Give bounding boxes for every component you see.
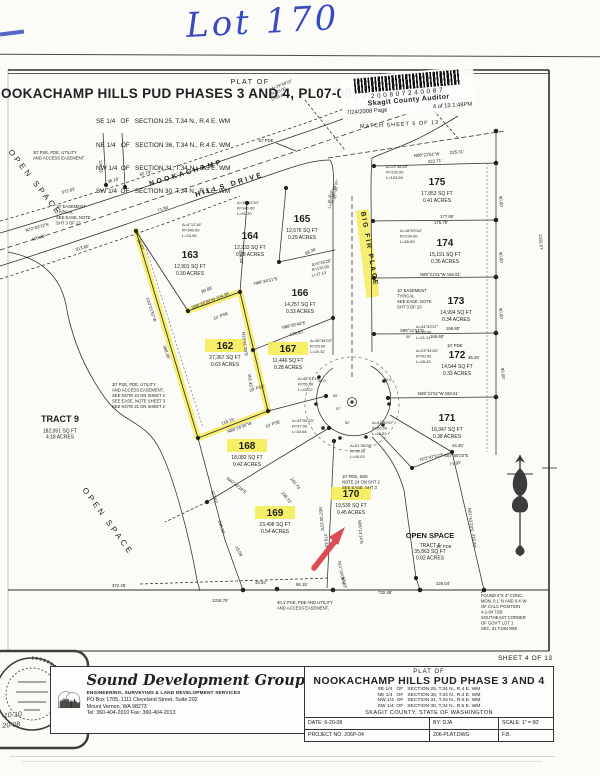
note-label: OF CALC POSITION [481, 604, 520, 609]
note-label: 30' PSE, PDE, UTILITY [33, 150, 77, 155]
note-label: SEE EASE. SHT 3 [342, 485, 378, 490]
dimension-label: 226.04' [436, 581, 450, 586]
sheet-title: NOOKACHAMP HILLS PUD PHASES 3 AND 4, PL0… [0, 86, 368, 101]
dimension-label: 44.45' [452, 443, 464, 448]
dimension-label: 90.00' [498, 252, 504, 264]
lot-number: 162 [217, 341, 234, 352]
curve-data-label: Δ=43°54'33" [292, 418, 315, 423]
scan-artifact-line [10, 756, 555, 757]
scan-artifact-line [22, 761, 542, 762]
note-label: AND ACCESS EASEMENT, [112, 388, 164, 393]
dimension-label: N40°40'26"E [225, 476, 247, 495]
dimension-label: 57' [336, 407, 341, 411]
curve-data-label: R=50.00 [416, 353, 432, 358]
note-label: AND ACCESS EASEMENT, [277, 606, 329, 611]
note-label: 40.1' PSE, PDE AND UTILITY [277, 600, 333, 605]
dimension-label: 10' PSE [265, 419, 281, 429]
note-label: SEE NOTE 21 ON SHEET 2 [112, 404, 166, 409]
lot-area-acres: 0.29 ACRES [288, 235, 317, 241]
dimension-label: 313.80' [75, 243, 90, 252]
lot-number: 164 [242, 231, 259, 242]
note-label: 30' PSE, PDE, UTILITY [112, 382, 156, 387]
curve-data-label: Δ=41°50'57" [372, 420, 395, 425]
dimension-label: 243.73' [289, 477, 302, 491]
dimension-label: 165.60' [430, 334, 444, 339]
lot-number: 175 [429, 177, 446, 188]
section-line: SW 1/4 OF SECTION 30, T.34 N., R.5 E. WM [96, 188, 230, 196]
lot-number: 171 [439, 413, 456, 424]
lot-area-sqft: 27,367 SQ FT [209, 355, 240, 361]
dimension-label: 278.43' [323, 534, 329, 549]
lot-number: 172 [449, 350, 466, 361]
dimension-label: N88°34'51"E [253, 276, 278, 286]
note-label: 10' EASEMENT [397, 288, 427, 293]
plat-title-block: PLAT OF NOOKACHAMP HILLS PUD PHASE 3 AND… [304, 666, 554, 742]
tb-project: PROJECT NO. 206P-04 [305, 729, 430, 742]
note-label: MON. 0.1' N AND 0.4' W [481, 599, 527, 604]
curve-data-label: Δ=15°22'20" [237, 200, 260, 205]
dimension-label: 236.72' [280, 491, 293, 505]
note-label: OF GOV'T LOT 1 [481, 621, 514, 626]
north-arrow-icon [507, 455, 533, 556]
dimension-label: OPEN SPACE [80, 486, 135, 557]
curve-data-label: R=57.00 [292, 423, 308, 428]
curve-data-label: L=21.11 [416, 335, 431, 340]
lot-area-sqft: 16,347 SQ FT [431, 427, 462, 433]
dimension-label: N88°21'51"W [414, 151, 441, 158]
firm-tagline: ENGINEERING, SURVEYING & LAND DEVELOPMEN… [87, 690, 305, 695]
note-label: TRACT 6 [420, 543, 441, 549]
note-label: TYPICAL [397, 294, 415, 299]
seal-handwritten-dates: -10-10 20-08 [1, 710, 23, 732]
lot-area-sqft: 23,498 SQ FT [259, 522, 290, 528]
lot-area-sqft: 12,901 SQ FT [174, 264, 205, 270]
note-label: TYPICAL [56, 210, 74, 215]
dimension-label: N88°21'51"W 166.61' [420, 272, 461, 277]
note-label: SEE NOTE 24 ON SHEET 2 [112, 393, 166, 398]
tb-dwg: 206-PLAT.DWG [430, 729, 499, 742]
dimension-label: 732.48' [378, 590, 392, 595]
lot-number: 174 [437, 238, 454, 249]
note-label: 35,863 SQ FT [414, 549, 445, 555]
dimension-label: 10' PSE [213, 311, 229, 321]
dimension-label: 372.83' [61, 186, 76, 195]
dimension-label: 30' [406, 335, 411, 339]
firm-title-block: Sound Development Group ENGINEERING, SUR… [50, 666, 306, 734]
dimension-label: 222.71' [428, 158, 442, 164]
lot-number: 167 [280, 344, 297, 355]
dimension-label: 90.00' [498, 308, 504, 320]
sheet-plat-of: PLAT OF [150, 79, 350, 86]
curve-data-label: L=20.32 [310, 349, 325, 354]
curve-data-label: L=103.69 [386, 175, 404, 180]
lot-area-sqft: 14,544 SQ FT [441, 364, 472, 370]
note-label: AND ACCESS EASEMENT [33, 156, 85, 161]
firm-address: PO Box 1705, 1111 Cleveland Street, Suit… [87, 697, 305, 717]
lot-area-sqft: 19,539 SQ FT [335, 503, 366, 509]
dimension-label: 372.45' [112, 583, 126, 588]
lot-area-acres: 0.33 ACRES [286, 309, 315, 315]
lot-area-sqft: 15,191 SQ FT [429, 252, 460, 258]
dimension-label: 210.84' [471, 534, 477, 549]
curve-data-label: R=50.00 [350, 448, 366, 453]
note-label: SHT 3 OF 13 [56, 221, 81, 226]
note-label: OPEN SPACE [406, 531, 455, 540]
curve-data-label: R=340.00 [182, 227, 200, 232]
lot-area-sqft: 12,676 SQ FT [286, 228, 317, 234]
note-label: 182,051 SQ FT [43, 428, 77, 434]
curve-data-label: R=35.00 [416, 329, 432, 334]
dimension-label: 175.78' [434, 220, 448, 225]
lot-area-acres: 0.38 ACRES [433, 434, 462, 440]
lot-number: 166 [292, 288, 309, 299]
curve-data-label: R=50.00 [372, 425, 388, 430]
lot-number: 173 [448, 296, 465, 307]
tb-title: NOOKACHAMP HILLS PUD PHASE 3 AND 4 [305, 675, 553, 687]
dimension-label: 177.85' [440, 214, 454, 219]
sheet-section-list: SE 1/4 OF SECTION 25, T.34 N., R.4 E. WM… [96, 103, 230, 203]
lot-area-acres: 0.33 ACRES [443, 371, 472, 377]
note-label: 4-1-04 72/9 [481, 610, 503, 615]
sheet-number: SHEET 4 OF 13 [498, 655, 553, 662]
note-label: 4.18 ACRES [46, 435, 75, 441]
curve-data-label: R=340.00 [237, 205, 255, 210]
curve-data-label: R=55.00 [298, 381, 314, 386]
dimension-label: N72°03'12"E [25, 221, 50, 233]
stamp-date: 7/24/2008 Page [346, 107, 387, 116]
note-label: SEC. 31 T34N R5E [481, 626, 517, 631]
lot-number: 169 [267, 508, 284, 519]
note-label: SEE EASE. NOTE SHEET 3 [112, 399, 166, 404]
lot-area-sqft: 14,257 SQ FT [284, 302, 315, 308]
dimension-label: 90.00' [498, 196, 504, 208]
note-label: FOUND 4"X 4" CONC. [481, 593, 523, 598]
lot-area-acres: 0.42 ACRES [233, 462, 262, 468]
dimension-label: N06°14'14"E [357, 520, 364, 545]
dimension-label: 45.83' [255, 580, 267, 585]
section-line: NE 1/4 OF SECTION 36, T.34 N., R.4 E. WM [96, 142, 230, 150]
dimension-label: 55' [333, 394, 338, 398]
note-label: 10' PDE, SEE [342, 474, 368, 479]
tb-fb: F.B. [499, 729, 553, 742]
note-label: NOTE 24 ON SHT 2 [342, 480, 381, 485]
dimension-label: 1318.76' [212, 598, 229, 603]
curve-data-label: L=24.95 [182, 233, 197, 238]
curve-data-label: L=43.68 [292, 429, 307, 434]
lot-number: 170 [343, 489, 360, 500]
scanned-plat-page: { "annotation": { "handwritten": "Lot 17… [0, 0, 600, 776]
curve-data-label: Δ=45°01'19" [298, 376, 321, 381]
dimension-label: 90.85' [201, 285, 214, 294]
dimension-label: 52' [345, 421, 350, 425]
curve-data-label: R=232.00 [386, 169, 404, 174]
dimension-label: 10' PDE [258, 138, 274, 143]
dimension-label: 18.09' [234, 545, 244, 558]
lot-area-acres: 0.30 ACRES [176, 271, 205, 277]
note-label: SHT 3 OF 13 [397, 305, 422, 310]
dimension-label: 420.98' [31, 233, 46, 242]
dimension-label: 35.26' [468, 355, 480, 360]
dimension-label: 139.00' [289, 329, 304, 337]
note-label: 10' EASEMENT [56, 204, 86, 209]
firm-name: Sound Development Group [87, 672, 305, 689]
lot-area-acres: 0.34 ACRES [442, 317, 471, 323]
note-label: 0.82 ACRES [416, 555, 445, 561]
lot-number: 163 [182, 250, 199, 261]
section-line: NW 1/4 OF SECTION 31, T.34 N., R.5 E. WM [96, 165, 230, 173]
curve-data-label: R=25.00 [310, 343, 326, 348]
lot-area-sqft: 17,853 SQ FT [421, 191, 452, 197]
curve-data-label: L=36.52 [372, 431, 387, 436]
dimension-label: 10' PDE [447, 343, 463, 348]
lot-area-acres: 0.35 ACRES [431, 259, 460, 265]
note-label: TRACT 9 [41, 414, 79, 424]
lot-area-sqft: 11,446 SQ FT [272, 358, 303, 364]
lot-area-acres: 0.28 ACRES [274, 365, 303, 371]
dimension-label: 53.83' [341, 576, 348, 588]
section-line: SE 1/4 OF SECTION 25, T.34 N., R.4 E. WM [96, 118, 230, 126]
lot-number: 168 [239, 441, 256, 452]
lot-area-acres: 0.54 ACRES [261, 529, 290, 535]
lot-area-acres: 0.63 ACRES [211, 362, 240, 368]
curve-data-label: L=65.59 [400, 239, 415, 244]
dimension-label: N87°50'23"E [444, 453, 469, 458]
dimension-label: N02°36'13"E [318, 507, 325, 532]
curve-data-label: Δ=51°36'08" [350, 443, 373, 448]
curve-data-label: Δ=4°12'16" [182, 222, 202, 227]
curve-data-label: Δ=45°34'03" [310, 338, 333, 343]
dimension-label: N88°21'51"W 160.61' [418, 391, 459, 396]
dimension-label: 40.0' [384, 378, 392, 382]
curve-data-label: Δ=23°36'28" [386, 164, 409, 169]
curve-data-label: R=234.00 [400, 233, 418, 238]
lot-area-sqft: 14,994 SQ FT [440, 310, 471, 316]
note-label: SOUTHEAST CORNER [481, 615, 526, 620]
dimension-label: 86.15' [296, 582, 308, 587]
firm-logo-icon [57, 671, 83, 729]
dimension-label: 159.80' [446, 326, 460, 331]
dimension-label: 1333.67' [538, 234, 544, 251]
lot-area-acres: 0.41 ACRES [423, 198, 452, 204]
lot-number: 165 [294, 214, 311, 225]
curve-data-label: L=43.22 [298, 387, 313, 392]
dimension-label: 225.31' [450, 149, 464, 155]
lot-area-acres: 0.45 ACRES [337, 510, 366, 516]
dimension-label: 117.62' [210, 490, 219, 505]
curve-data-label: L=28.43 [416, 359, 431, 364]
tb-sections: SE 1/4 OF SECTION 25, T.34 N., R.4 E. WM… [305, 687, 553, 710]
curve-data-label: Δ=23°34'26" [416, 348, 439, 353]
curve-data-label: L=91.20 [237, 211, 252, 216]
curve-data-label: Δ=18°03'34" [400, 228, 423, 233]
dimension-label: 138.26' [217, 520, 226, 535]
lot-area-sqft: 18,082 SQ FT [231, 455, 262, 461]
dimension-label: 134.48' [238, 250, 244, 265]
handwritten-lot-label: Lot 170 [185, 0, 340, 46]
curve-data-label: Δ=34°33'37" [416, 324, 439, 329]
note-label: SEE EASE. NOTE [397, 299, 432, 304]
dimension-label: 90.00' [500, 368, 506, 380]
curve-data-label: L=45.03 [350, 454, 365, 459]
note-label: SEE EASE. NOTE [56, 215, 91, 220]
dimension-label: MATCH SHEET 5 OF 13 [360, 120, 440, 130]
